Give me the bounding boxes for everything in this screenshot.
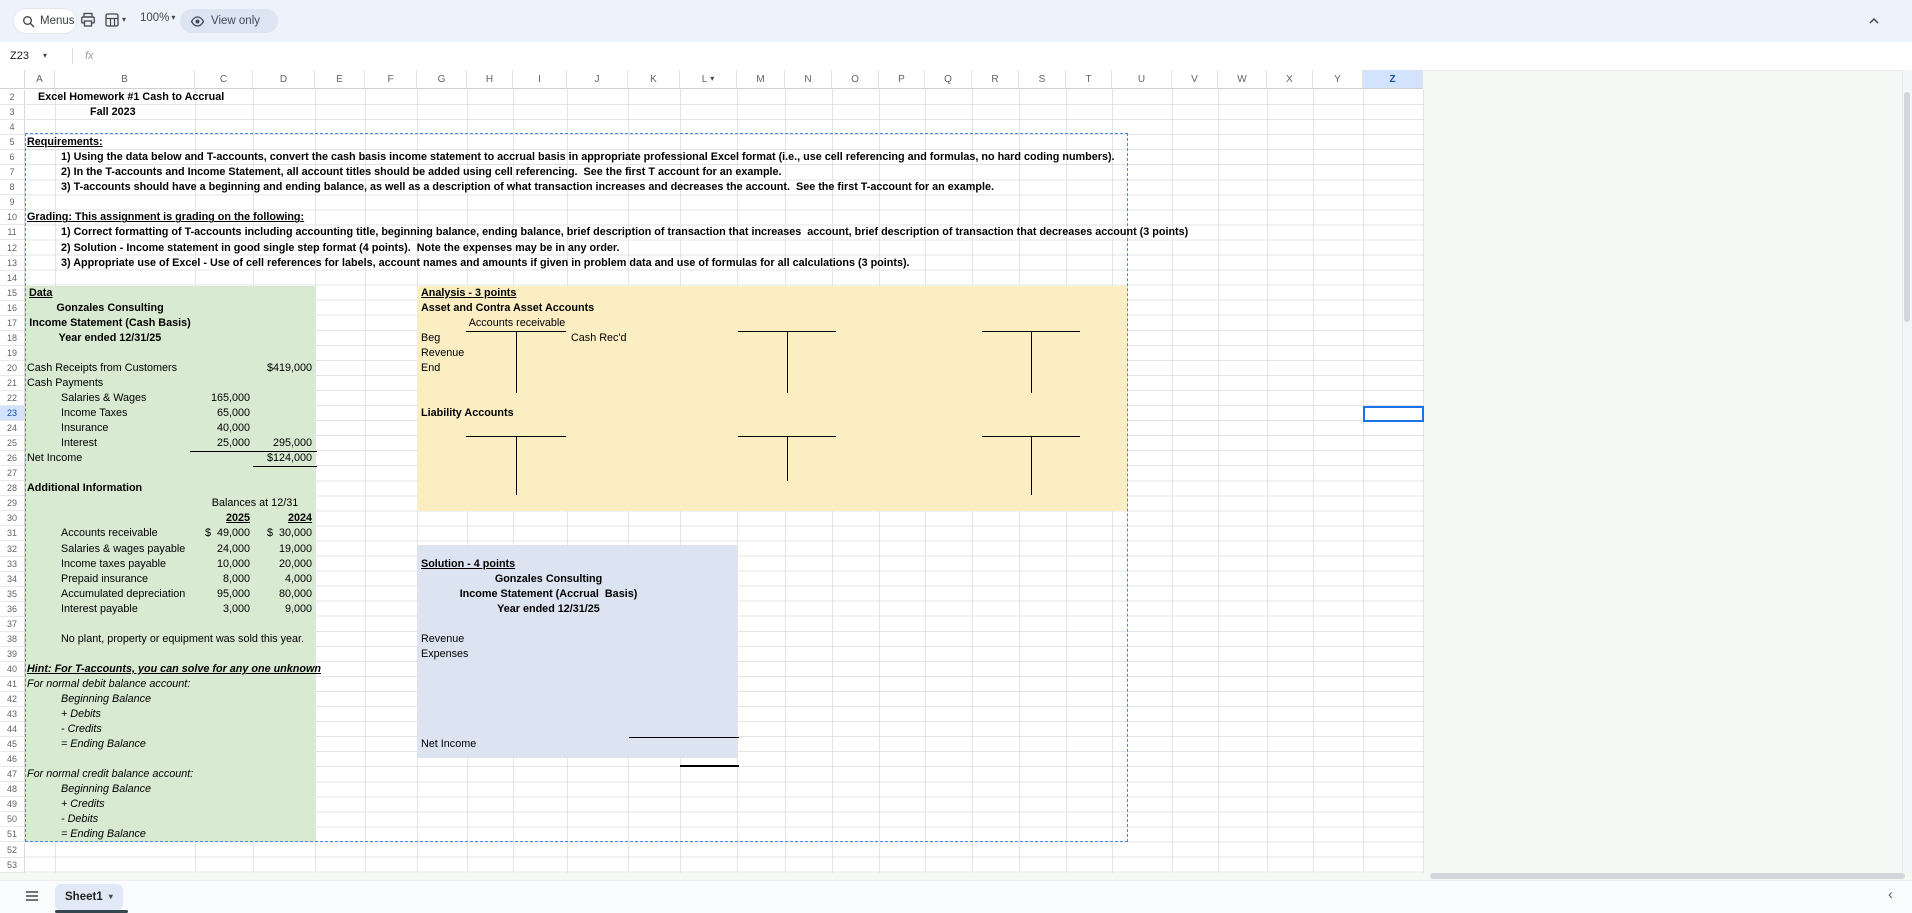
column-header-U[interactable]: U — [1112, 70, 1172, 89]
hide-menus-button[interactable] — [1866, 13, 1882, 29]
row-header-51[interactable]: 51 — [0, 827, 25, 842]
cell-A5[interactable]: Requirements: — [27, 135, 103, 150]
row-header-33[interactable]: 33 — [0, 557, 25, 572]
row-header-38[interactable]: 38 — [0, 632, 25, 647]
row-header-14[interactable]: 14 — [0, 271, 25, 286]
vertical-gridline — [1172, 89, 1173, 873]
row-header-11[interactable]: 11 — [0, 225, 25, 240]
row-header-50[interactable]: 50 — [0, 812, 25, 827]
cell-D32[interactable]: 19,000 — [253, 542, 312, 557]
cell-D36[interactable]: 9,000 — [253, 602, 312, 617]
column-header-O[interactable]: O — [832, 70, 879, 89]
vertical-scrollbar-thumb[interactable] — [1904, 92, 1910, 322]
cell-B49[interactable]: + Credits — [61, 797, 105, 812]
row-header-5[interactable]: 5 — [0, 135, 25, 150]
column-header-Q[interactable]: Q — [925, 70, 972, 89]
row-header-3[interactable]: 3 — [0, 105, 25, 120]
cell-G33[interactable]: Solution - 4 points — [421, 557, 515, 572]
fx-icon[interactable]: fx — [85, 50, 94, 62]
column-header-R[interactable]: R — [972, 70, 1019, 89]
cell-B24[interactable]: Insurance — [61, 421, 108, 436]
column-header-G[interactable]: G — [417, 70, 467, 89]
column-header-Y[interactable]: Y — [1313, 70, 1363, 89]
row-header-31[interactable]: 31 — [0, 526, 25, 541]
column-header-F[interactable]: F — [365, 70, 417, 89]
cell-B8[interactable]: 3) T-accounts should have a beginning an… — [61, 180, 994, 195]
cell-C32[interactable]: 24,000 — [195, 542, 250, 557]
cell-A3[interactable]: Fall 2023 — [90, 105, 136, 120]
cell-A26[interactable]: Net Income — [27, 451, 82, 466]
row-header-20[interactable]: 20 — [0, 361, 25, 376]
row-header-9[interactable]: 9 — [0, 195, 25, 210]
cell-B6[interactable]: 1) Using the data below and T-accounts, … — [61, 150, 1115, 165]
liability-t-account-stem-line — [516, 436, 517, 495]
cell-HI17[interactable]: Accounts receivable — [467, 316, 567, 331]
row-header-40[interactable]: 40 — [0, 662, 25, 677]
chevron-down-icon: ▾ — [171, 14, 175, 22]
cell-B32[interactable]: Salaries & wages payable — [61, 542, 185, 557]
toolbar: Menus ▾ 100% ▾ View only — [0, 0, 1912, 42]
paint-format-button[interactable]: ▾ — [104, 12, 126, 28]
menus-label: Menus — [40, 15, 75, 27]
eye-icon — [190, 14, 205, 29]
cell-C22[interactable]: 165,000 — [195, 391, 250, 406]
cell-B12[interactable]: 2) Solution - Income statement in good s… — [61, 241, 620, 256]
hamburger-icon — [24, 888, 40, 904]
cell-C25[interactable]: 25,000 — [195, 436, 250, 451]
name-box[interactable]: Z23 ▾ — [0, 50, 72, 62]
sheet-tab-label: Sheet1 — [65, 891, 103, 903]
cell-A2[interactable]: Excel Homework #1 Cash to Accrual — [38, 90, 224, 105]
cell-G20[interactable]: End — [421, 361, 440, 376]
row-header-8[interactable]: 8 — [0, 180, 25, 195]
row-header-19[interactable]: 19 — [0, 346, 25, 361]
cell-A10[interactable]: Grading: This assignment is grading on t… — [27, 210, 304, 225]
menus-search-button[interactable]: Menus — [14, 9, 76, 33]
row-header-47[interactable]: 47 — [0, 767, 25, 782]
column-header-Z[interactable]: Z — [1363, 70, 1423, 89]
cell-A28[interactable]: Additional Information — [27, 481, 142, 496]
cell-GK35[interactable]: Income Statement (Accrual Basis) — [417, 587, 680, 602]
cell-A21[interactable]: Cash Payments — [27, 376, 103, 391]
row-header-43[interactable]: 43 — [0, 707, 25, 722]
row-header-10[interactable]: 10 — [0, 210, 25, 225]
row-header-15[interactable]: 15 — [0, 286, 25, 301]
row-header-34[interactable]: 34 — [0, 572, 25, 587]
cell-B38[interactable]: No plant, property or equipment was sold… — [61, 632, 304, 647]
cell-C23[interactable]: 65,000 — [195, 406, 250, 421]
horizontal-scrollbar-thumb[interactable] — [1430, 873, 1905, 879]
search-icon — [22, 15, 35, 28]
cell-B33[interactable]: Income taxes payable — [61, 557, 166, 572]
cell-CD29[interactable]: Balances at 12/31 — [195, 496, 315, 511]
grid-icon — [104, 12, 120, 28]
print-icon — [80, 12, 96, 28]
row-header-24[interactable]: 24 — [0, 421, 25, 436]
row-header-23[interactable]: 23 — [0, 406, 25, 421]
cell-D25[interactable]: 295,000 — [253, 436, 312, 451]
chevron-left-icon[interactable]: ‹ — [1888, 886, 1893, 903]
row-header-13[interactable]: 13 — [0, 256, 25, 271]
column-header-A[interactable]: A — [25, 70, 55, 89]
cell-AB17[interactable]: Income Statement (Cash Basis) — [25, 316, 195, 331]
cell-B11[interactable]: 1) Correct formatting of T-accounts incl… — [61, 225, 1188, 240]
cell-G19[interactable]: Revenue — [421, 346, 464, 361]
cell-B35[interactable]: Accumulated depreciation — [61, 587, 185, 602]
asset-t-account-stem-line — [516, 331, 517, 393]
column-header-X[interactable]: X — [1267, 70, 1313, 89]
net-income-rule — [253, 466, 317, 467]
liability-t-account-stem-line — [1031, 436, 1032, 495]
cell-C34[interactable]: 8,000 — [195, 572, 250, 587]
row-header-44[interactable]: 44 — [0, 722, 25, 737]
column-header-I[interactable]: I — [513, 70, 567, 89]
column-header-C[interactable]: C — [195, 70, 253, 89]
row-header-26[interactable]: 26 — [0, 451, 25, 466]
cell-B43[interactable]: + Debits — [61, 707, 101, 722]
column-header-W[interactable]: W — [1218, 70, 1267, 89]
cell-G18[interactable]: Beg — [421, 331, 440, 346]
cell-C30[interactable]: 2025 — [195, 511, 250, 526]
column-header-P[interactable]: P — [879, 70, 925, 89]
cell-D20[interactable]: $419,000 — [253, 361, 312, 376]
cell-G16[interactable]: Asset and Contra Asset Accounts — [421, 301, 594, 316]
cell-C31[interactable]: $ 49,000 — [195, 526, 250, 541]
row-header-45[interactable]: 45 — [0, 737, 25, 752]
cell-D34[interactable]: 4,000 — [253, 572, 312, 587]
cell-D30[interactable]: 2024 — [253, 511, 312, 526]
row-header-4[interactable]: 4 — [0, 120, 25, 135]
cell-C24[interactable]: 40,000 — [195, 421, 250, 436]
row-header-29[interactable]: 29 — [0, 496, 25, 511]
cell-B48[interactable]: Beginning Balance — [61, 782, 151, 797]
zoom-control[interactable]: 100% ▾ — [140, 12, 175, 24]
cell-B25[interactable]: Interest — [61, 436, 97, 451]
asset-t-account-stem-line — [1031, 331, 1032, 393]
cell-D31[interactable]: $ 30,000 — [253, 526, 312, 541]
row-header-41[interactable]: 41 — [0, 677, 25, 692]
vertical-gridline — [1267, 89, 1268, 873]
cell-A20[interactable]: Cash Receipts from Customers — [27, 361, 177, 376]
cell-A40[interactable]: Hint: For T-accounts, you can solve for … — [27, 662, 321, 677]
cell-C33[interactable]: 10,000 — [195, 557, 250, 572]
column-header-H[interactable]: H — [467, 70, 513, 89]
cell-D33[interactable]: 20,000 — [253, 557, 312, 572]
cell-B7[interactable]: 2) In the T-accounts and Income Statemen… — [61, 165, 782, 180]
row-header-49[interactable]: 49 — [0, 797, 25, 812]
view-only-label: View only — [211, 15, 260, 27]
cell-AB18[interactable]: Year ended 12/31/25 — [25, 331, 195, 346]
asset-t-account-stem-line — [787, 331, 788, 393]
cell-AB16[interactable]: Gonzales Consulting — [25, 301, 195, 316]
cell-GK36[interactable]: Year ended 12/31/25 — [417, 602, 680, 617]
zoom-level: 100% — [140, 12, 169, 24]
row-header-2[interactable]: 2 — [0, 90, 25, 105]
cell-B13[interactable]: 3) Appropriate use of Excel - Use of cel… — [61, 256, 910, 271]
vertical-gridline — [1313, 89, 1314, 873]
cell-reference: Z23 — [10, 50, 29, 62]
column-header-E[interactable]: E — [315, 70, 365, 89]
vertical-gridline — [1423, 89, 1424, 873]
column-header-V[interactable]: V — [1172, 70, 1218, 89]
cell-B51[interactable]: = Ending Balance — [61, 827, 146, 842]
cell-J18[interactable]: Cash Rec'd — [571, 331, 626, 346]
chevron-down-icon: ▾ — [122, 16, 126, 24]
row-header-35[interactable]: 35 — [0, 587, 25, 602]
formula-bar: Z23 ▾ fx — [0, 42, 1912, 71]
cell-GK34[interactable]: Gonzales Consulting — [417, 572, 680, 587]
row-header-48[interactable]: 48 — [0, 782, 25, 797]
cell-G39[interactable]: Expenses — [421, 647, 468, 662]
row-header-7[interactable]: 7 — [0, 165, 25, 180]
cell-A41[interactable]: For normal debit balance account: — [27, 677, 190, 692]
cell-G23[interactable]: Liability Accounts — [421, 406, 514, 421]
all-sheets-button[interactable] — [24, 888, 40, 904]
solution-subtotal-rule — [629, 737, 739, 738]
row-header-37[interactable]: 37 — [0, 617, 25, 632]
cell-A47[interactable]: For normal credit balance account: — [27, 767, 193, 782]
cell-C36[interactable]: 3,000 — [195, 602, 250, 617]
chevron-down-icon: ▾ — [710, 75, 714, 83]
cell-D35[interactable]: 80,000 — [253, 587, 312, 602]
select-all-corner[interactable] — [0, 70, 25, 89]
column-header-K[interactable]: K — [628, 70, 680, 89]
solution-total-rule — [680, 765, 739, 768]
row-header-25[interactable]: 25 — [0, 436, 25, 451]
cell-B44[interactable]: - Credits — [61, 722, 102, 737]
cell-B50[interactable]: - Debits — [61, 812, 98, 827]
column-header-L[interactable]: L▾ — [680, 70, 737, 89]
row-header-16[interactable]: 16 — [0, 301, 25, 316]
column-header-B[interactable]: B — [55, 70, 195, 89]
cell-B22[interactable]: Salaries & Wages — [61, 391, 146, 406]
cell-A15[interactable]: Data — [29, 286, 52, 301]
cell-B42[interactable]: Beginning Balance — [61, 692, 151, 707]
row-header-27[interactable]: 27 — [0, 466, 25, 481]
row-header-28[interactable]: 28 — [0, 481, 25, 496]
row-header-46[interactable]: 46 — [0, 752, 25, 767]
chevron-down-icon: ▾ — [109, 893, 113, 901]
row-header-21[interactable]: 21 — [0, 376, 25, 391]
divider — [72, 48, 73, 64]
liability-t-account-stem-line — [787, 436, 788, 481]
cell-B31[interactable]: Accounts receivable — [61, 526, 158, 541]
view-only-chip[interactable]: View only — [180, 9, 278, 33]
column-header-J[interactable]: J — [567, 70, 628, 89]
cell-G45[interactable]: Net Income — [421, 737, 476, 752]
column-header-S[interactable]: S — [1019, 70, 1066, 89]
row-header-18[interactable]: 18 — [0, 331, 25, 346]
cell-D26[interactable]: $124,000 — [253, 451, 312, 466]
chevron-up-icon — [1866, 13, 1882, 29]
row-header-22[interactable]: 22 — [0, 391, 25, 406]
cell-B36[interactable]: Interest payable — [61, 602, 138, 617]
row-header-17[interactable]: 17 — [0, 316, 25, 331]
row-header-42[interactable]: 42 — [0, 692, 25, 707]
vertical-gridline — [1363, 89, 1364, 873]
print-button[interactable] — [80, 12, 96, 28]
row-header-30[interactable]: 30 — [0, 511, 25, 526]
sheet-tab-active[interactable]: Sheet1 ▾ — [55, 884, 123, 910]
row-header-53[interactable]: 53 — [0, 858, 25, 873]
sheet-tab-bar: Sheet1 ▾ ‹ — [0, 880, 1912, 913]
cell-B34[interactable]: Prepaid insurance — [61, 572, 148, 587]
chevron-down-icon: ▾ — [43, 52, 47, 60]
cell-G15[interactable]: Analysis - 3 points — [421, 286, 516, 301]
column-header-T[interactable]: T — [1066, 70, 1112, 89]
column-header-D[interactable]: D — [253, 70, 315, 89]
cell-G38[interactable]: Revenue — [421, 632, 464, 647]
column-header-N[interactable]: N — [785, 70, 832, 89]
selected-cell-Z23[interactable] — [1363, 406, 1424, 422]
cell-B23[interactable]: Income Taxes — [61, 406, 127, 421]
column-header-M[interactable]: M — [737, 70, 785, 89]
row-header-32[interactable]: 32 — [0, 542, 25, 557]
row-header-6[interactable]: 6 — [0, 150, 25, 165]
row-header-52[interactable]: 52 — [0, 843, 25, 858]
row-header-12[interactable]: 12 — [0, 241, 25, 256]
row-header-36[interactable]: 36 — [0, 602, 25, 617]
cell-C35[interactable]: 95,000 — [195, 587, 250, 602]
row-header-39[interactable]: 39 — [0, 647, 25, 662]
cell-B45[interactable]: = Ending Balance — [61, 737, 146, 752]
vertical-gridline — [1218, 89, 1219, 873]
